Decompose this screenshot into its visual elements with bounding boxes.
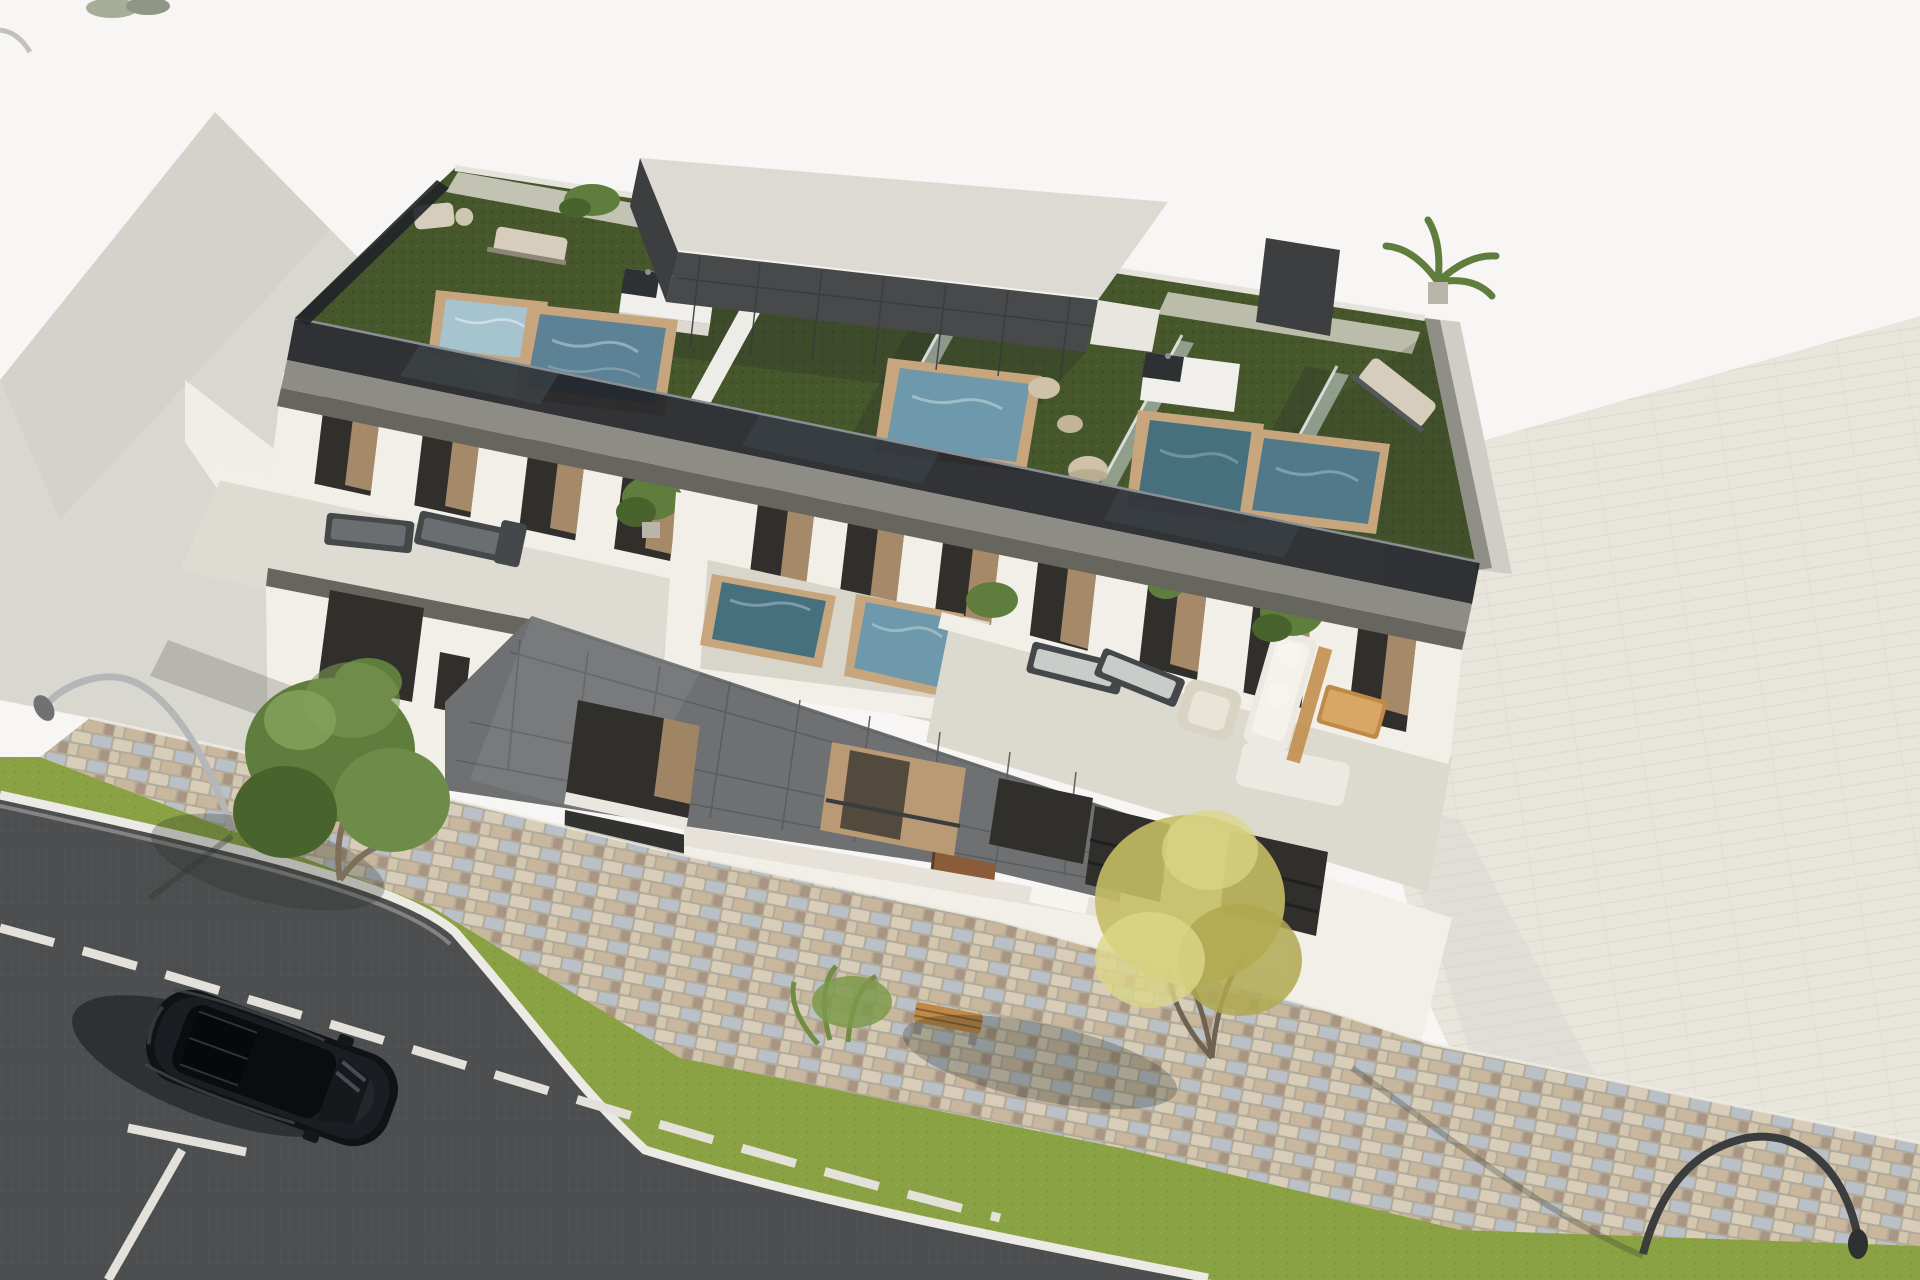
render-canvas	[0, 0, 1920, 1280]
stair-bulkhead	[1256, 238, 1340, 336]
terrace-plant-2	[966, 582, 1018, 618]
architectural-render	[0, 0, 1920, 1280]
lamp-head	[1848, 1229, 1868, 1259]
